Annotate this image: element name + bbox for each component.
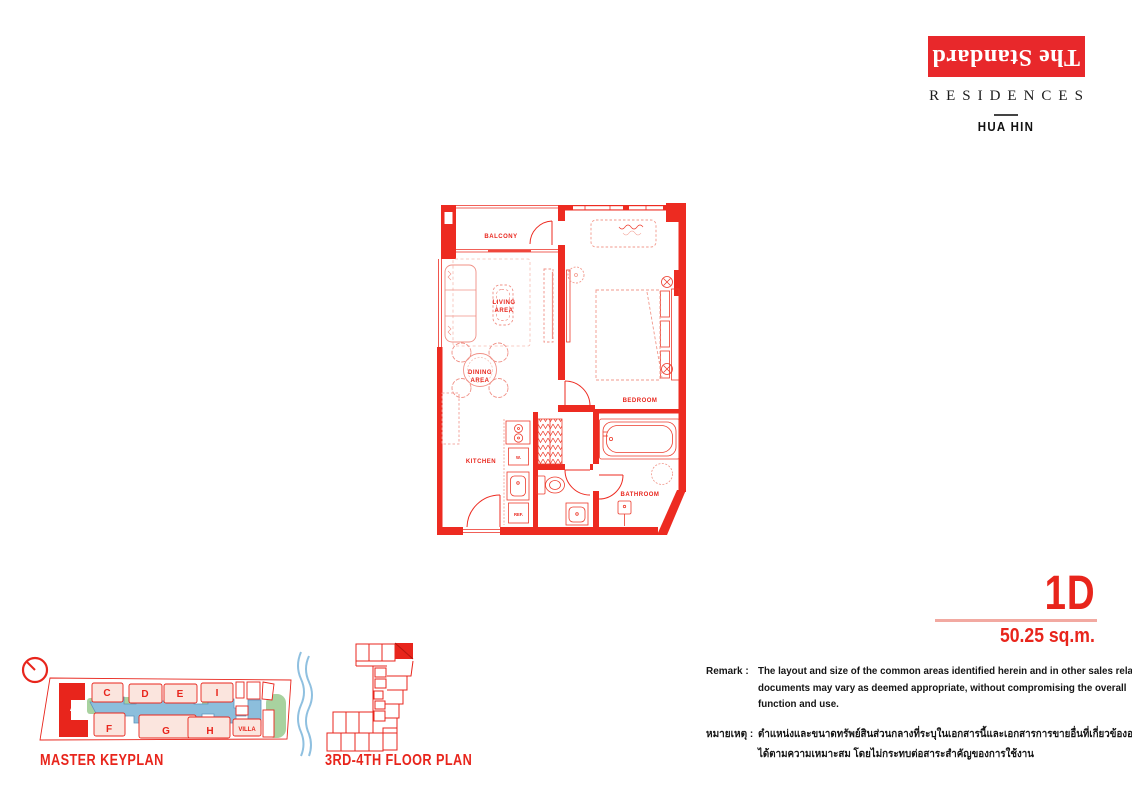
building-c-label: C: [103, 688, 110, 699]
remark-section: Remark : The layout and size of the comm…: [706, 663, 1106, 764]
brand-sub-title: RESIDENCES: [908, 88, 1104, 105]
walls: [437, 203, 686, 535]
sea-waves: [298, 652, 312, 756]
wall-openings: [445, 206, 664, 224]
unit-code: 1D: [1044, 566, 1095, 621]
building-i-label: I: [216, 688, 219, 699]
building-g-label: G: [162, 726, 170, 737]
master-keyplan-drawing: A C D E I F G H VILLA: [20, 650, 312, 762]
brand-logo: The Standard: [928, 36, 1085, 77]
kitchen-fixtures: [504, 419, 530, 525]
brand-logo-text: The Standard: [932, 43, 1080, 70]
balcony-label: BALCONY: [484, 234, 517, 240]
remark-thai-line-2: ได้ตามความเหมาะสม โดยไม่กระทบต่อสาระสำคั…: [758, 744, 1132, 764]
brand-divider: [994, 114, 1018, 116]
brand-location: HUA HIN: [916, 120, 1096, 134]
wc-fixtures: [537, 476, 589, 525]
unit-area: 50.25 sq.m.: [1000, 625, 1095, 648]
remark-text-en: The layout and size of the common areas …: [758, 663, 1132, 713]
floor-miniplan-title: 3RD-4TH FLOOR PLAN: [325, 752, 472, 770]
building-h-label: H: [206, 726, 213, 737]
floorplan-page: The Standard RESIDENCES HUA HIN: [0, 0, 1132, 800]
floor-miniplan-drawing: [325, 638, 435, 756]
bedroom-fixtures: [567, 270, 680, 380]
remark-line-3: function and use.: [758, 696, 1132, 713]
master-keyplan-title: MASTER KEYPLAN: [40, 752, 164, 770]
building-f-label: F: [106, 724, 112, 735]
bathroom-fixtures: [600, 419, 680, 526]
windows: [439, 206, 647, 533]
compass-icon: [23, 658, 47, 682]
washer-label: W.: [516, 455, 521, 460]
remark-label: Remark :: [706, 663, 755, 680]
dining-area-label-2: AREA: [470, 378, 489, 384]
laundry-closet: [538, 419, 562, 464]
remark-line-2: documents may vary as deemed appropriate…: [758, 680, 1132, 697]
remark-text-thai: ตำแหน่งและขนาดทรัพย์สินส่วนกลางที่ระบุใน…: [758, 724, 1132, 764]
unit-underline: [935, 619, 1097, 622]
fridge-label: REF.: [514, 512, 523, 517]
remark-thai-line-1: ตำแหน่งและขนาดทรัพย์สินส่วนกลางที่ระบุใน…: [758, 724, 1132, 744]
building-a-label: A: [70, 703, 77, 713]
building-villa-label: VILLA: [238, 727, 256, 733]
living-area-label-1: LIVING: [492, 300, 515, 306]
bathroom-label: BATHROOM: [621, 492, 660, 498]
highlighted-unit-cell: [395, 643, 413, 659]
living-area-label-2: AREA: [494, 308, 513, 314]
remark-label-thai: หมายเหตุ :: [706, 724, 755, 744]
unit-floorplan-drawing: BALCONY LIVING AREA DINING AREA KITCHEN …: [433, 192, 686, 535]
kitchen-label: KITCHEN: [466, 459, 496, 465]
remark-line-1: The layout and size of the common areas …: [758, 663, 1132, 680]
bedroom-label: BEDROOM: [623, 398, 658, 404]
miniplan-outline: [327, 644, 413, 751]
building-e-label: E: [177, 689, 184, 700]
building-d-label: D: [141, 689, 148, 700]
dining-area-label-1: DINING: [468, 370, 492, 376]
